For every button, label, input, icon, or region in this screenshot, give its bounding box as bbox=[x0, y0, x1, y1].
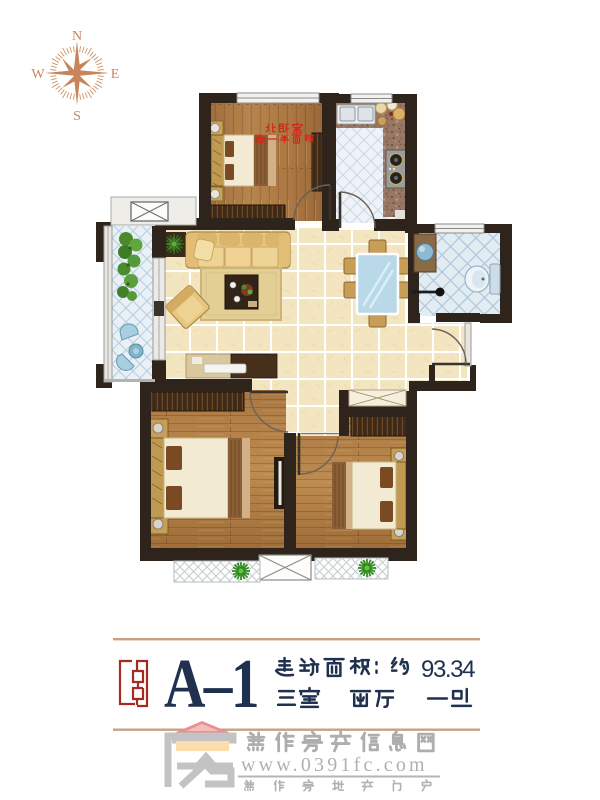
svg-text:S: S bbox=[73, 109, 81, 124]
svg-text:A–1: A–1 bbox=[164, 645, 258, 723]
svg-text:www.0391fc.com: www.0391fc.com bbox=[241, 754, 428, 776]
svg-text:E: E bbox=[111, 67, 120, 82]
svg-text:93.34: 93.34 bbox=[421, 656, 475, 683]
svg-text:W: W bbox=[31, 67, 45, 82]
svg-text:N: N bbox=[72, 29, 82, 44]
